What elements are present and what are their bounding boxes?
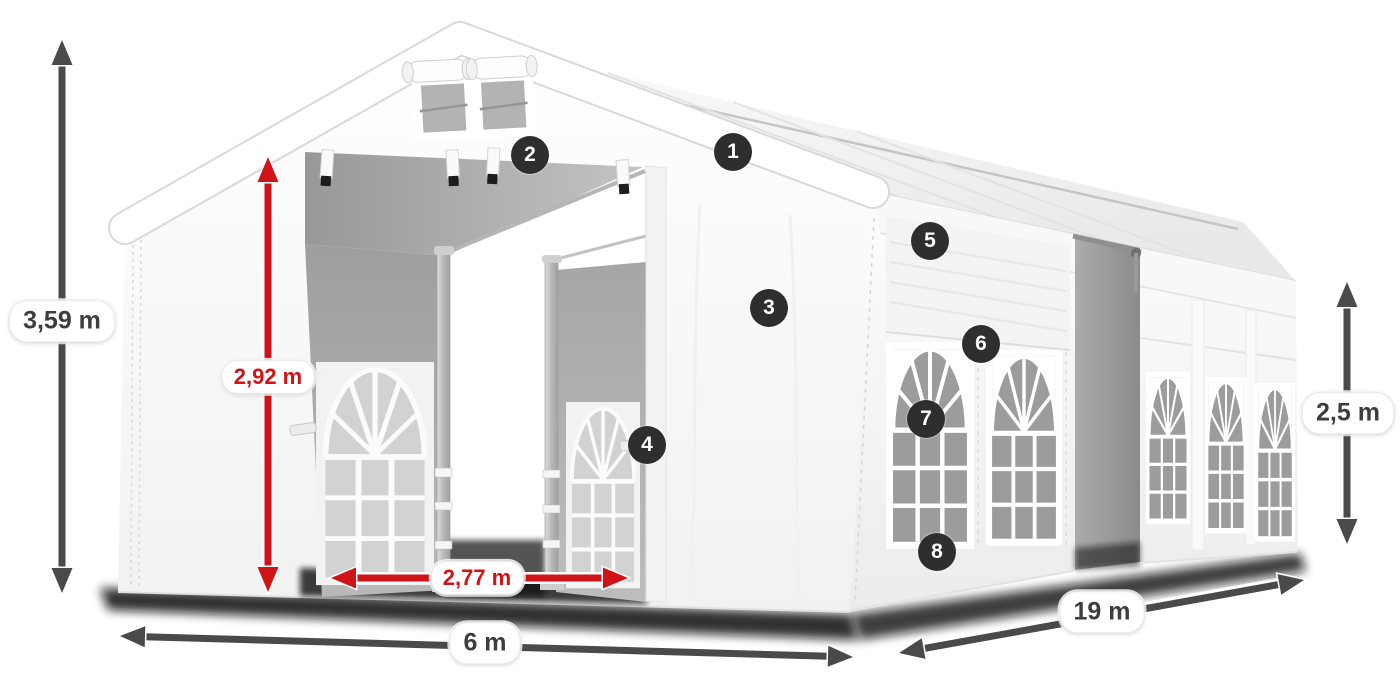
tent-dimension-diagram: 3,59 m 2,92 m 2,77 m 6 m 19 m 2,5 m 1 2 … xyxy=(0,0,1400,700)
dimension-label-entrance-width: 2,77 m xyxy=(431,561,524,595)
feature-marker-7[interactable]: 7 xyxy=(907,400,945,438)
feature-marker-6[interactable]: 6 xyxy=(962,325,1000,363)
feature-marker-3[interactable]: 3 xyxy=(750,289,788,327)
feature-marker-1[interactable]: 1 xyxy=(714,133,752,171)
feature-marker-4[interactable]: 4 xyxy=(628,426,666,464)
feature-marker-5[interactable]: 5 xyxy=(911,222,949,260)
dimension-label-entrance-height: 2,92 m xyxy=(222,360,315,394)
feature-marker-2[interactable]: 2 xyxy=(511,136,549,174)
dimension-label-side-height: 2,5 m xyxy=(1302,392,1394,434)
dimension-label-front-width: 6 m xyxy=(449,622,520,664)
annotation-overlay: 3,59 m 2,92 m 2,77 m 6 m 19 m 2,5 m 1 2 … xyxy=(0,0,1400,700)
dimension-label-length: 19 m xyxy=(1060,591,1145,633)
dimension-label-total-height: 3,59 m xyxy=(9,300,115,342)
feature-marker-8[interactable]: 8 xyxy=(918,533,956,571)
